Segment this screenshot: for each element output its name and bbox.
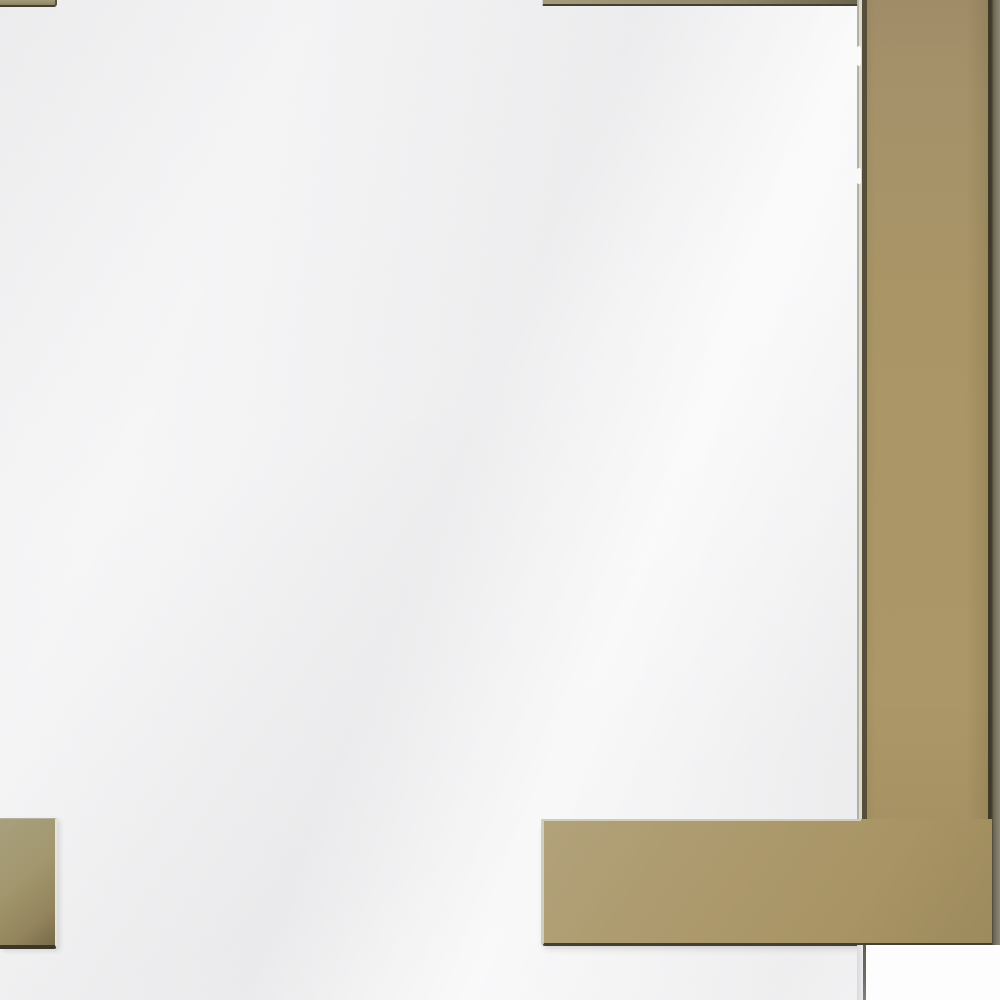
brass-accent-right-bar-inner-edge: [857, 0, 867, 822]
specular-highlight: [857, 168, 861, 184]
brass-accent-right-bar-side-face: [988, 0, 1000, 945]
specular-highlight: [857, 46, 861, 66]
brass-accent-top-right: [542, 0, 861, 6]
brass-accent-bottom-right-arm-top-edge: [543, 819, 861, 821]
brass-accent-right-bar: [858, 0, 990, 945]
photo-stage: Close-up corner detail of a frameless sq…: [0, 0, 1000, 1000]
brass-accent-bottom-left: [0, 818, 57, 949]
brass-accent-top-left: [0, 0, 57, 7]
wall-background: [866, 945, 1000, 1000]
brass-accent-bottom-right-arm: [542, 819, 992, 946]
